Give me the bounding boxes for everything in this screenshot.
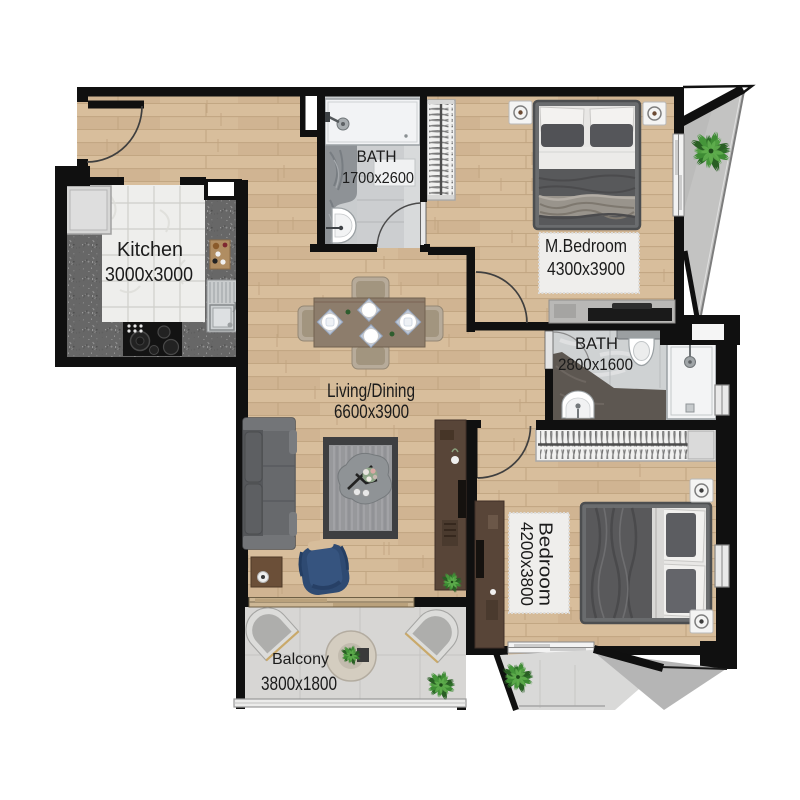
svg-text:4200x3800: 4200x3800 [517, 522, 537, 606]
svg-text:BATH: BATH [357, 148, 397, 166]
svg-text:M.Bedroom: M.Bedroom [545, 236, 627, 256]
svg-text:Kitchen: Kitchen [117, 238, 183, 261]
svg-text:Balcony: Balcony [272, 651, 329, 668]
svg-text:6600x3900: 6600x3900 [334, 401, 409, 423]
svg-text:3800x1800: 3800x1800 [261, 674, 337, 695]
svg-text:4300x3900: 4300x3900 [547, 259, 625, 279]
svg-text:BATH: BATH [575, 335, 618, 353]
svg-text:2800x1600: 2800x1600 [558, 355, 633, 374]
svg-text:Living/Dining: Living/Dining [327, 380, 415, 402]
svg-text:Bedroom: Bedroom [536, 522, 557, 606]
svg-text:1700x2600: 1700x2600 [342, 170, 414, 187]
svg-text:3000x3000: 3000x3000 [105, 263, 193, 286]
